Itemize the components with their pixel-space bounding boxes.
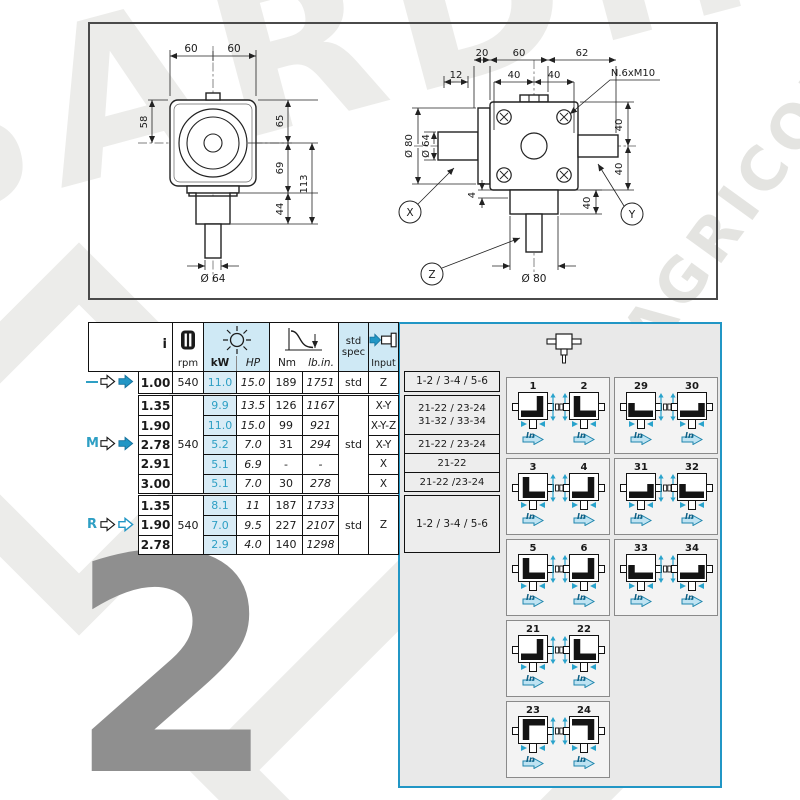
cyan-arrow-right	[572, 583, 578, 589]
dim-60-left: 60	[184, 43, 197, 55]
bottom-shaft	[580, 501, 588, 510]
in-label: In	[577, 430, 586, 441]
watermark-logo-2: 2	[68, 518, 277, 800]
shaft-stub	[620, 565, 627, 573]
position-group-33-34: 33 In 34 In	[614, 539, 718, 616]
header-input: Input	[368, 323, 398, 371]
input-in-arrow: In	[681, 511, 703, 522]
position-diagram: 31 In	[620, 462, 662, 522]
shaft-stub	[620, 403, 627, 411]
cell-lbin: 2107	[302, 515, 338, 534]
input-in-arrow: In	[630, 592, 652, 603]
cell-kw: 7.0	[203, 515, 236, 534]
dim-40-right-up: 40	[614, 119, 625, 132]
cell-rpm: 540	[172, 396, 203, 493]
in-label: In	[526, 673, 535, 684]
in-label: In	[526, 592, 535, 603]
input-label: Input	[371, 356, 396, 371]
cyan-arrow-right	[629, 583, 635, 589]
dim-dia-64-left: Ø 64	[420, 134, 432, 158]
header-power: kW HP	[203, 323, 269, 371]
cyan-arrow-right	[680, 583, 686, 589]
cell-nm: 99	[269, 415, 302, 434]
cell-input: X-Y-Z	[368, 415, 398, 434]
in-label: In	[526, 511, 535, 522]
cyan-arrow-left	[698, 421, 704, 427]
bottom-shaft	[637, 501, 645, 510]
shaft-stub	[671, 403, 678, 411]
cell-hp: 15.0	[236, 415, 269, 434]
table-header: i rpm	[88, 322, 399, 372]
cyan-arrow-right	[680, 502, 686, 508]
cyan-arrow-right	[521, 745, 527, 751]
dim-69: 69	[275, 162, 286, 175]
shaft-stub	[598, 646, 605, 654]
bottom-shaft	[688, 501, 696, 510]
shaft-stub	[671, 565, 678, 573]
ratio-symbol: i	[163, 337, 167, 352]
solid-arrow-icon	[118, 436, 134, 451]
bevel-gear-glyph	[677, 473, 707, 501]
bottom-shaft	[688, 420, 696, 429]
bevel-gear-glyph	[677, 392, 707, 420]
cyan-arrow-left	[539, 502, 545, 508]
side-view-drawing: 20 60 62 12 40 40 N.6xM10 Ø 80 Ø 64	[370, 26, 670, 294]
position-diagram: 3 In	[512, 462, 554, 522]
shaft-stub	[512, 565, 519, 573]
cell-ratio: 1.00	[139, 372, 172, 393]
spec-label: spec	[342, 347, 365, 358]
cell-ratio: 2.78	[139, 535, 172, 554]
position-number: 22	[577, 624, 591, 635]
ratio-group-r: 1.35 540 8.1 11 187 1733 std Z 1.90 7.0 …	[138, 495, 399, 555]
bevel-gear-glyph	[569, 635, 599, 663]
cell-input: Z	[368, 496, 398, 554]
bevel-gear-glyph	[569, 554, 599, 582]
bottom-shaft	[637, 582, 645, 591]
position-number: 29	[634, 381, 648, 392]
position-number: 34	[685, 543, 699, 554]
cyan-arrow-left	[647, 502, 653, 508]
cell-hp: 15.0	[236, 372, 269, 393]
shaft-stub	[512, 646, 519, 654]
dim-65: 65	[275, 115, 286, 128]
technical-drawing-box: 60 60 58 65 69 44 113 Ø 6	[88, 22, 718, 300]
pto-shaft-icon	[178, 329, 198, 351]
cell-kw: 8.1	[203, 496, 236, 515]
thread-note: N.6xM10	[611, 68, 655, 79]
input-in-arrow: In	[522, 430, 544, 441]
bevel-gear-glyph	[626, 392, 656, 420]
cell-nm: 140	[269, 535, 302, 554]
bottom-shaft	[529, 420, 537, 429]
m-marker: M	[86, 436, 98, 451]
cyan-arrow-right	[521, 502, 527, 508]
position-number: 2	[581, 381, 588, 392]
cyan-arrow-left	[590, 583, 596, 589]
bottom-shaft	[688, 582, 696, 591]
cell-ratio: 2.91	[139, 454, 172, 473]
in-label: In	[577, 754, 586, 765]
position-number: 5	[530, 543, 537, 554]
bevel-gear-glyph	[626, 473, 656, 501]
cyan-arrow-right	[521, 583, 527, 589]
solid-arrow-icon	[118, 374, 134, 389]
position-group-3-4: 3 In 4 In	[506, 458, 610, 535]
position-number: 33	[634, 543, 648, 554]
dim-58: 58	[139, 116, 150, 129]
cyan-arrow-left	[698, 502, 704, 508]
cyan-arrow-right	[521, 421, 527, 427]
position-diagram: 29 In	[620, 381, 662, 441]
cell-lbin: 1167	[302, 396, 338, 415]
dim-40-right-low: 40	[614, 163, 625, 176]
position-diagram: 24 In	[563, 705, 605, 765]
cell-input: X	[368, 454, 398, 473]
input-in-arrow: In	[573, 754, 595, 765]
input-in-arrow: In	[630, 430, 652, 441]
positions-cell-merged: 21-22 / 23-24 31-32 / 33-34	[404, 395, 500, 435]
in-label: In	[577, 673, 586, 684]
outline-arrow-icon	[100, 517, 116, 532]
cell-kw: 9.9	[203, 396, 236, 415]
cell-std: std	[338, 496, 368, 554]
shaft-stub	[563, 727, 570, 735]
position-number: 23	[526, 705, 540, 716]
cyan-arrow-left	[590, 502, 596, 508]
cell-hp: 7.0	[236, 474, 269, 493]
bevel-gear-glyph	[569, 716, 599, 744]
positions-cell: 21-22 / 23-24	[404, 434, 500, 454]
shaft-stub	[598, 727, 605, 735]
bevel-gear-glyph	[569, 392, 599, 420]
shaft-stub	[563, 565, 570, 573]
outline-arrow-icon	[100, 436, 116, 451]
dim-dia-80-left: Ø 80	[403, 134, 415, 158]
cell-hp: 7.0	[236, 435, 269, 454]
input-in-arrow: In	[573, 592, 595, 603]
header-rpm: rpm	[172, 323, 203, 371]
rpm-label: rpm	[178, 356, 198, 371]
cell-nm: 30	[269, 474, 302, 493]
ratio-group-m: 1.35 540 9.9 13.5 126 1167 std X-Y 1.90 …	[138, 395, 399, 494]
cell-hp: 9.5	[236, 515, 269, 534]
in-label: In	[685, 511, 694, 522]
shaft-stub	[512, 484, 519, 492]
position-group-23-24: 23 In 24 In	[506, 701, 610, 778]
position-diagram: 1 In	[512, 381, 554, 441]
input-in-arrow: In	[573, 430, 595, 441]
cyan-arrow-right	[680, 421, 686, 427]
input-in-arrow: In	[522, 592, 544, 603]
position-number: 31	[634, 462, 648, 473]
position-number: 6	[581, 543, 588, 554]
dim-4: 4	[467, 192, 478, 198]
cyan-arrow-left	[539, 583, 545, 589]
header-torque: Nm lb.in.	[269, 323, 338, 371]
in-label: In	[577, 592, 586, 603]
cell-nm: 126	[269, 396, 302, 415]
hp-label: HP	[236, 356, 269, 371]
cyan-arrow-left	[590, 664, 596, 670]
dim-113: 113	[299, 174, 310, 193]
position-number: 21	[526, 624, 540, 635]
cell-lbin: 1733	[302, 496, 338, 515]
cell-lbin: 278	[302, 474, 338, 493]
cell-input: Z	[368, 372, 398, 393]
in-label: In	[577, 511, 586, 522]
cell-input: X-Y	[368, 435, 398, 454]
cyan-arrow-right	[521, 664, 527, 670]
torque-curve-icon	[282, 326, 326, 354]
axis-z-label: Z	[428, 269, 435, 281]
bottom-shaft	[529, 744, 537, 753]
shaft-stub	[706, 484, 713, 492]
cell-kw: 11.0	[203, 372, 236, 393]
cell-ratio: 2.78	[139, 435, 172, 454]
cell-ratio: 3.00	[139, 474, 172, 493]
cell-lbin: 1298	[302, 535, 338, 554]
position-group-29-30: 29 In 30 In	[614, 377, 718, 454]
shaft-stub	[598, 403, 605, 411]
in-label: In	[526, 430, 535, 441]
cyan-arrow-left	[539, 745, 545, 751]
cell-lbin: 294	[302, 435, 338, 454]
shaft-stub	[706, 565, 713, 573]
cell-nm: 187	[269, 496, 302, 515]
bevel-gear-glyph	[518, 716, 548, 744]
bevel-gear-glyph	[626, 554, 656, 582]
cell-lbin: 921	[302, 415, 338, 434]
cyan-arrow-left	[698, 583, 704, 589]
in-label: In	[634, 511, 643, 522]
positions-cell: 1-2 / 3-4 / 5-6	[404, 495, 500, 553]
cell-kw: 5.2	[203, 435, 236, 454]
bevel-gear-glyph	[518, 635, 548, 663]
input-in-arrow: In	[681, 430, 703, 441]
kw-label: kW	[204, 356, 236, 371]
bottom-shaft	[529, 501, 537, 510]
cell-ratio: 1.35	[139, 396, 172, 415]
cell-hp: 11	[236, 496, 269, 515]
shaft-stub	[671, 484, 678, 492]
input-in-arrow: In	[522, 754, 544, 765]
cell-input: X	[368, 474, 398, 493]
cell-nm: -	[269, 454, 302, 473]
ratio-group-1: 1.00 540 11.0 15.0 189 1751 std Z	[138, 371, 399, 394]
bottom-shaft	[529, 663, 537, 672]
shaft-stub	[563, 484, 570, 492]
position-diagram: 33 In	[620, 543, 662, 603]
bevel-gear-glyph	[569, 473, 599, 501]
nm-label: Nm	[270, 356, 304, 371]
cell-std: std	[338, 396, 368, 493]
cyan-outline-arrow-icon	[118, 517, 134, 532]
dim-40-hub: 40	[582, 197, 593, 210]
shaft-stub	[563, 646, 570, 654]
position-diagram: 21 In	[512, 624, 554, 684]
position-number: 4	[581, 462, 588, 473]
lbin-label: lb.in.	[304, 356, 338, 371]
r-marker: R	[86, 517, 98, 532]
cyan-arrow-left	[590, 745, 596, 751]
shaft-stub	[706, 403, 713, 411]
bottom-shaft	[580, 582, 588, 591]
dim-44: 44	[275, 203, 286, 216]
in-label: In	[634, 592, 643, 603]
input-in-arrow: In	[573, 511, 595, 522]
bottom-shaft	[580, 744, 588, 753]
position-number: 32	[685, 462, 699, 473]
in-label: In	[634, 430, 643, 441]
dim-12: 12	[450, 70, 463, 81]
cell-ratio: 1.90	[139, 415, 172, 434]
axis-y-label: Y	[628, 209, 636, 221]
cell-input: X-Y	[368, 396, 398, 415]
header-std-spec: std spec	[338, 323, 368, 371]
in-label: In	[685, 430, 694, 441]
position-group-5-6: 5 In 6 In	[506, 539, 610, 616]
cell-kw: 11.0	[203, 415, 236, 434]
position-diagram: 32 In	[671, 462, 713, 522]
input-in-arrow: In	[573, 673, 595, 684]
position-group-21-22: 21 In 22 In	[506, 620, 610, 697]
in-label: In	[685, 592, 694, 603]
input-in-arrow: In	[630, 511, 652, 522]
cell-nm: 189	[269, 372, 302, 393]
position-number: 24	[577, 705, 591, 716]
position-diagram: 4 In	[563, 462, 605, 522]
shaft-stub	[512, 403, 519, 411]
marker-group2: M	[86, 395, 136, 492]
position-number: 3	[530, 462, 537, 473]
cell-ratio: 1.35	[139, 496, 172, 515]
cell-std: std	[338, 372, 368, 393]
cell-nm: 31	[269, 435, 302, 454]
bevel-gear-glyph	[518, 473, 548, 501]
marker-group3: R	[86, 495, 136, 553]
bottom-shaft	[580, 663, 588, 672]
bevel-gear-glyph	[518, 554, 548, 582]
cell-lbin: 1751	[302, 372, 338, 393]
cell-hp: 13.5	[236, 396, 269, 415]
dim-40b: 40	[548, 70, 561, 81]
positions-cell: 21-22	[404, 453, 500, 473]
shaft-stub	[620, 484, 627, 492]
input-in-arrow: In	[681, 592, 703, 603]
position-diagram: 5 In	[512, 543, 554, 603]
std-label: std	[342, 336, 365, 347]
cyan-arrow-right	[572, 745, 578, 751]
dim-dia-80-bottom: Ø 80	[522, 273, 547, 285]
input-shaft-icon	[369, 331, 398, 349]
dim-60-right: 60	[227, 43, 240, 55]
cell-nm: 227	[269, 515, 302, 534]
position-diagram: 23 In	[512, 705, 554, 765]
cell-hp: 4.0	[236, 535, 269, 554]
datasheet-page: BARDIN AGRICOLE 2 60 60	[0, 0, 800, 800]
cyan-arrow-right	[629, 421, 635, 427]
header-ratio: i	[89, 323, 172, 371]
cell-kw: 2.9	[203, 535, 236, 554]
cell-lbin: -	[302, 454, 338, 473]
shaft-stub	[563, 403, 570, 411]
cell-kw: 5.1	[203, 474, 236, 493]
positions-cell: 1-2 / 3-4 / 5-6	[404, 371, 500, 392]
cyan-arrow-right	[572, 502, 578, 508]
dash-marker	[86, 381, 98, 383]
input-in-arrow: In	[522, 511, 544, 522]
cyan-arrow-left	[539, 421, 545, 427]
dim-40a: 40	[508, 70, 521, 81]
cyan-arrow-left	[647, 421, 653, 427]
position-group-1-2: 1 In 2 In	[506, 377, 610, 454]
cell-rpm: 540	[172, 372, 203, 393]
axis-x-label: X	[406, 207, 413, 219]
in-label: In	[526, 754, 535, 765]
position-group-31-32: 31 In 32 In	[614, 458, 718, 535]
shaft-stub	[598, 565, 605, 573]
cyan-arrow-right	[572, 664, 578, 670]
bottom-shaft	[529, 582, 537, 591]
position-diagram: 34 In	[671, 543, 713, 603]
gearbox-schematic-icon	[542, 328, 586, 370]
input-in-arrow: In	[522, 673, 544, 684]
cyan-arrow-right	[629, 502, 635, 508]
position-diagram: 6 In	[563, 543, 605, 603]
dim-62: 62	[576, 48, 589, 59]
bottom-shaft	[637, 420, 645, 429]
dim-dia-64: Ø 64	[201, 273, 226, 285]
bottom-shaft	[580, 420, 588, 429]
sun-icon	[219, 325, 255, 355]
position-diagram: 22 In	[563, 624, 605, 684]
positions-line2: 31-32 / 33-34	[418, 415, 486, 428]
bevel-gear-glyph	[518, 392, 548, 420]
position-diagram: 2 In	[563, 381, 605, 441]
bevel-gear-glyph	[677, 554, 707, 582]
front-view-drawing: 60 60 58 65 69 44 113 Ø 6	[110, 30, 360, 296]
positions-cell: 21-22 /23-24	[404, 472, 500, 492]
cell-rpm: 540	[172, 496, 203, 554]
cyan-arrow-left	[539, 664, 545, 670]
shaft-stub	[512, 727, 519, 735]
outline-arrow-icon	[100, 374, 116, 389]
position-number: 30	[685, 381, 699, 392]
cyan-arrow-right	[572, 421, 578, 427]
cell-kw: 5.1	[203, 454, 236, 473]
dim-20: 20	[476, 48, 489, 59]
marker-group1	[86, 371, 136, 392]
cyan-arrow-left	[590, 421, 596, 427]
positions-line1: 21-22 / 23-24	[418, 402, 486, 415]
shaft-stub	[598, 484, 605, 492]
position-diagram: 30 In	[671, 381, 713, 441]
dim-60: 60	[513, 48, 526, 59]
position-number: 1	[530, 381, 537, 392]
cell-hp: 6.9	[236, 454, 269, 473]
cell-ratio: 1.90	[139, 515, 172, 534]
cyan-arrow-left	[647, 583, 653, 589]
